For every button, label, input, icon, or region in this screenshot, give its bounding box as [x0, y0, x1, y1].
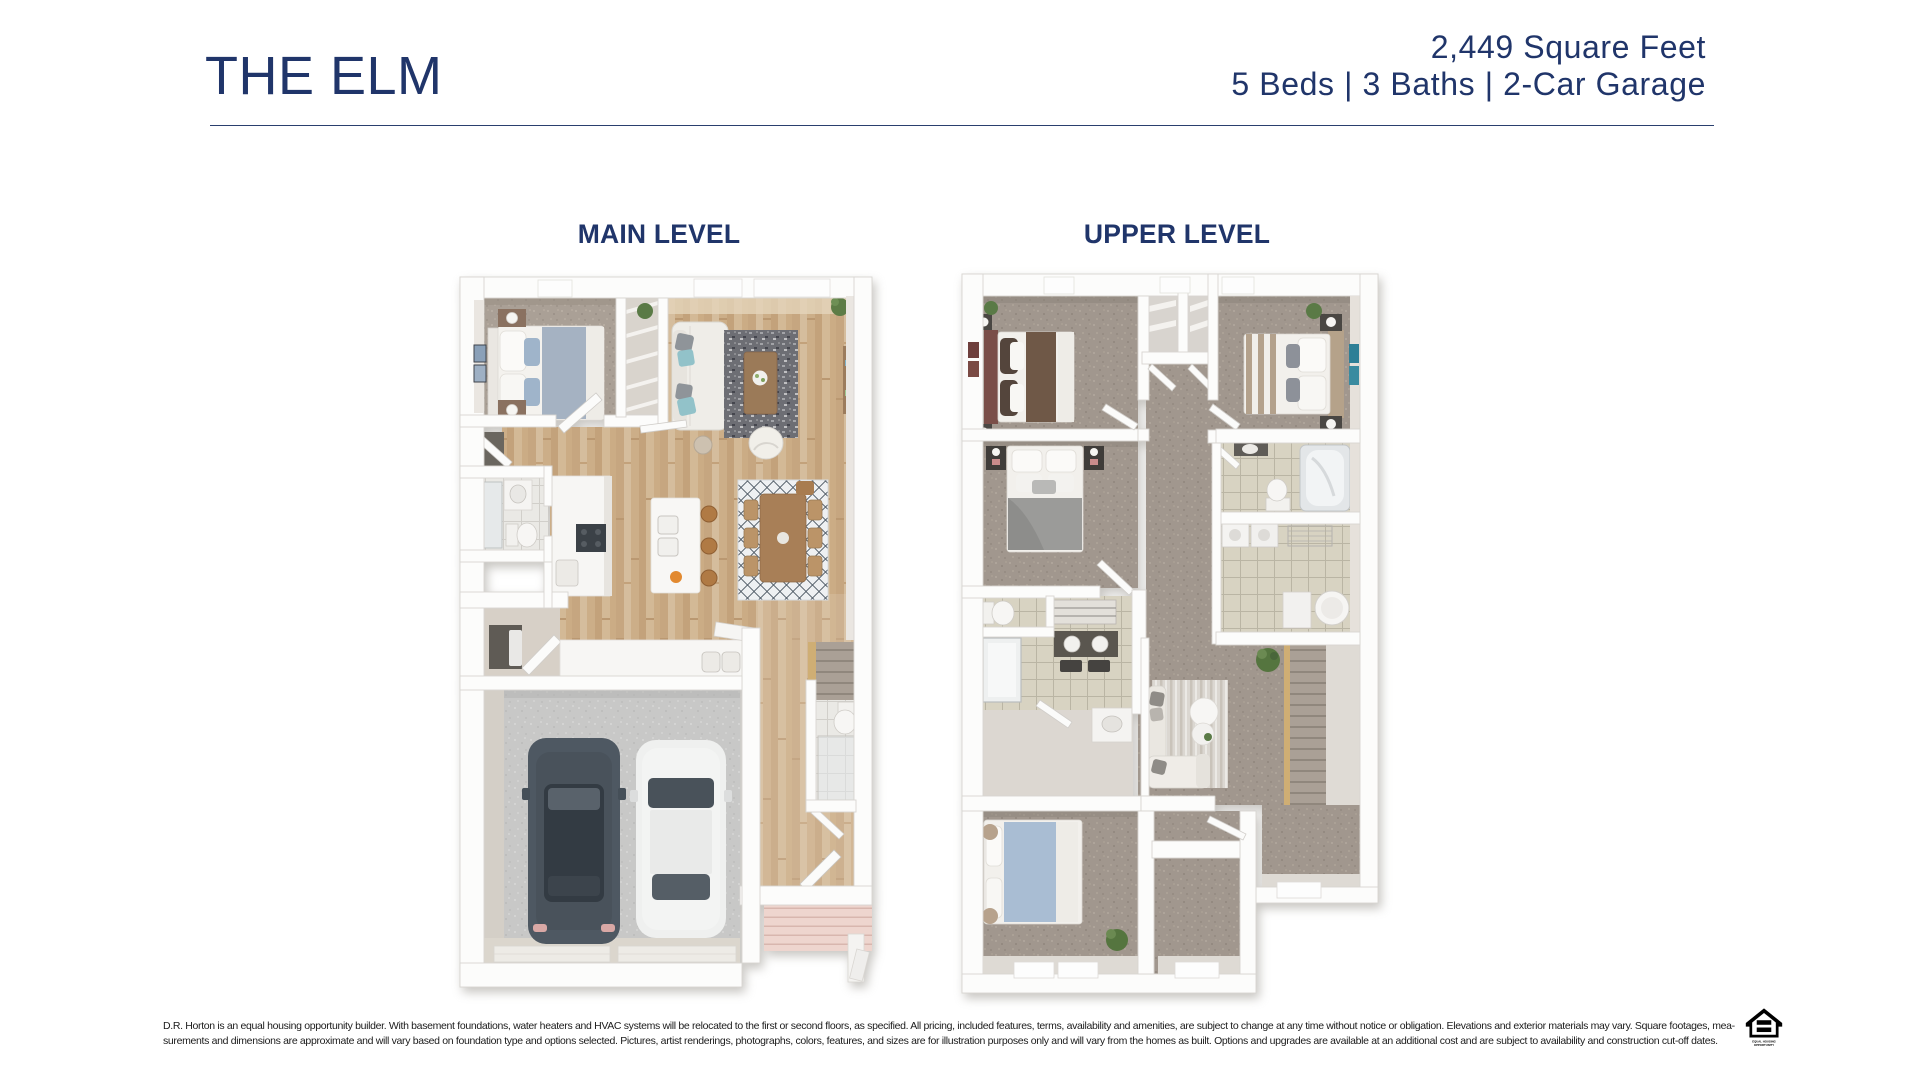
svg-text:OPPORTUNITY: OPPORTUNITY [1754, 1043, 1774, 1047]
